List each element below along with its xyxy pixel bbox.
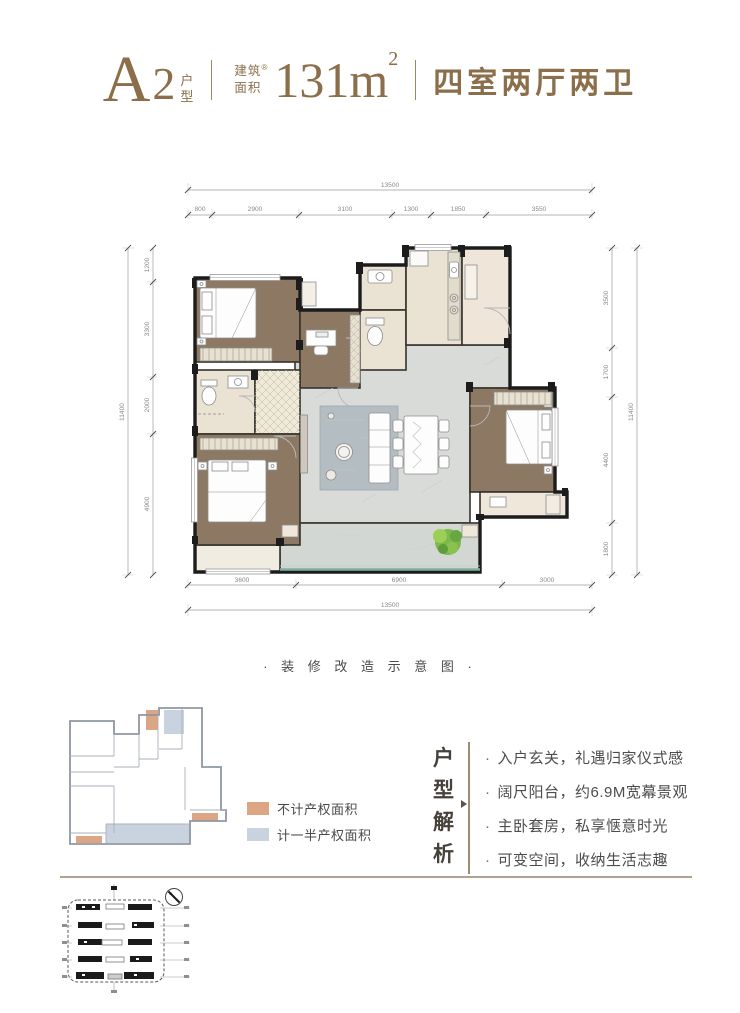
svg-text:800: 800 [194,206,205,213]
closet-hatch [255,370,300,434]
legend-swatch-orange [247,802,269,815]
mini-patches [76,710,218,843]
unit-type-number: 2 [152,61,175,107]
svg-text:3100: 3100 [338,206,353,213]
registered-mark: ® [261,63,268,72]
suite-basin [490,497,506,507]
floor-plan-diagram: 13500 800 2900 3100 1300 1850 3550 11400… [110,170,655,630]
compass-icon [166,889,183,906]
balcony-left [195,545,280,572]
svg-text:2000: 2000 [144,397,151,412]
coffee-table [336,444,353,461]
legend: 不计产权面积 计一半产权面积 [247,799,372,851]
svg-text:3000: 3000 [540,577,555,584]
pouf [326,470,336,480]
legend-item: 不计产权面积 [247,799,372,818]
area-exponent: 2 [388,48,398,71]
wardrobe-master [200,438,278,450]
analysis-bullet: ·可变空间，收纳生活志趣 [485,844,688,878]
sofa [369,413,390,483]
svg-text:3500: 3500 [603,290,610,305]
wardrobe-secondary [200,348,272,361]
floor-lamp [328,413,334,419]
unit-analysis: 户 型 解 析 ·入户玄关，礼遇归家仪式感 ·阔尺阳台，约6.9M宽幕景观 ·主… [433,742,688,878]
tv-console [301,415,308,473]
site-buildings-outline [102,904,124,979]
shoe-cabinet [465,265,477,299]
svg-text:4900: 4900 [144,496,151,511]
analysis-title: 户 型 解 析 [433,742,454,868]
svg-text:1700: 1700 [603,364,610,379]
divider-rule [60,876,692,878]
svg-text:1800: 1800 [603,541,610,556]
unit-type-suffix: 户 型 [180,73,194,104]
svg-text:1300: 1300 [404,206,419,213]
header-divider [415,60,416,100]
analysis-bullet: ·主卧套房，私享惬意时光 [485,810,688,844]
dining-set [393,416,449,474]
svg-text:3600: 3600 [235,577,250,584]
area-label: 建筑® 面积 [234,63,268,96]
fridge [410,251,428,266]
site-plan [62,884,190,1000]
analysis-bullet: ·入户玄关，礼遇归家仪式感 [485,742,688,776]
svg-text:2900: 2900 [248,206,263,213]
svg-text:11400: 11400 [628,403,635,421]
analysis-divider [468,742,470,874]
unit-header: A 2 户 型 建筑® 面积 131m 2 四室两厅两卫 [0,50,740,109]
bed-master [198,460,277,522]
area-value: 131m [274,55,388,105]
mini-outline-plan [40,690,245,870]
dim-bottom-total: 13500 [381,602,400,609]
unit-type-letter: A [103,50,151,109]
header-divider [211,60,212,100]
svg-text:3300: 3300 [144,321,151,336]
wardrobe-suite [494,392,552,405]
floorplan-page: A 2 户 型 建筑® 面积 131m 2 四室两厅两卫 [0,0,740,1013]
analysis-bullets: ·入户玄关，礼遇归家仪式感 ·阔尺阳台，约6.9M宽幕景观 ·主卧套房，私享惬意… [485,742,688,878]
washbasin [368,270,392,283]
bed-secondary [197,281,256,346]
divider-arrow-icon [461,800,467,808]
legend-item: 计一半产权面积 [247,825,372,844]
svg-text:11400: 11400 [119,403,126,421]
rooms-description: 四室两厅两卫 [433,58,637,102]
suite-shower [546,495,560,514]
section-title: · 装 修 改 造 示 意 图 · [0,656,740,675]
analysis-bullet: ·阔尺阳台，约6.9M宽幕景观 [485,776,688,810]
svg-text:1850: 1850 [451,206,466,213]
toilet [366,318,384,346]
svg-text:3550: 3550 [532,206,547,213]
bed-suite [506,399,552,474]
svg-text:1200: 1200 [144,257,151,272]
dim-top-total: 13500 [381,182,400,189]
legend-swatch-blue [247,828,269,841]
svg-text:4400: 4400 [603,452,610,467]
ac-platform [302,282,316,306]
svg-text:6900: 6900 [392,577,407,584]
